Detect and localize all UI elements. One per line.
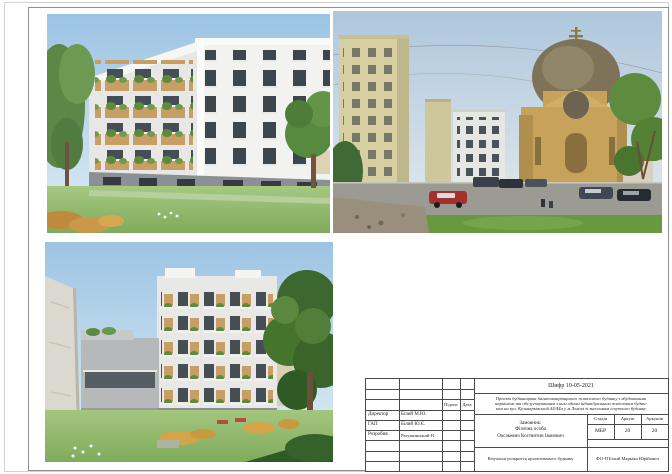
- project-code: Шифр 10-05-2021: [474, 379, 668, 393]
- sheet-title: Візуальні розкриття проектованого будинк…: [475, 447, 586, 471]
- project-description-line: ком на вул. Кульпарківській 44/44а у м.Л…: [496, 406, 646, 411]
- project-description: Проект будівництва багатоквартирного жит…: [475, 393, 667, 414]
- mid-buildings: [425, 99, 505, 185]
- pedestrian: [541, 199, 545, 207]
- lawn: [47, 186, 330, 233]
- signatory-role: Розробив: [366, 430, 401, 440]
- client-name: Оксакевич Костянтин Іванович: [497, 434, 563, 441]
- lawn: [45, 410, 333, 462]
- sheets-total: 20: [641, 424, 668, 439]
- sheet-header: Аркуш: [614, 414, 641, 424]
- author-company: ФО-П Білий Маркіян Юрійович: [588, 447, 667, 471]
- church-small-dome: [563, 91, 589, 119]
- date-column-header: Дата: [460, 399, 474, 409]
- building-render-street-view-image: [47, 14, 330, 233]
- title-block: Шифр 10-05-2021 Проект будівництва багат…: [365, 378, 669, 472]
- sheets-total-header: Аркушів: [641, 414, 668, 424]
- signatory-name: Білий Ю.Є.: [399, 420, 444, 430]
- sheet-number: 20: [614, 424, 641, 439]
- signatory-role: ГАП: [366, 420, 401, 430]
- stage-header: Стадія: [587, 414, 614, 424]
- signatory-role: Директор: [366, 410, 401, 420]
- site-photo-church-street-image: [333, 11, 662, 233]
- client-info: Замовник: Фізична особа Оксакевич Костян…: [474, 414, 587, 447]
- signatory-name: Білий М.Ю.: [399, 410, 444, 420]
- drawing-sheet: Шифр 10-05-2021 Проект будівництва багат…: [0, 0, 672, 474]
- stage-value: МБР: [587, 424, 614, 439]
- signatory-name: Ратушинський Н.: [399, 430, 444, 440]
- signature-column-header: Підпис: [442, 399, 460, 409]
- building-render-courtyard-view-image: [45, 242, 333, 462]
- pedestrian: [549, 201, 553, 208]
